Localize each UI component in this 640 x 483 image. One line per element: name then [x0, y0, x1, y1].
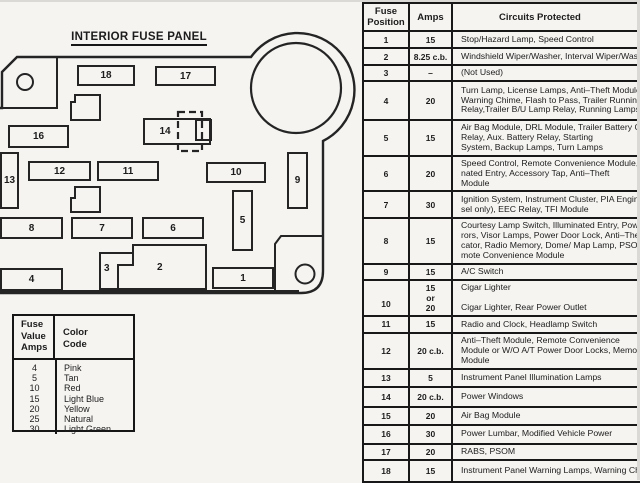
fuse-label: 1	[240, 273, 246, 284]
fuse-position-cell: 12	[363, 333, 409, 369]
fuse-label: 8	[29, 223, 35, 234]
mount-block-bottomright	[275, 236, 323, 291]
amps-cell: 8.25 c.b.	[409, 48, 452, 65]
fuse-row: 1815Instrument Panel Warning Lamps, Warn…	[363, 460, 640, 482]
circuits-cell: Radio and Clock, Headlamp Switch	[452, 316, 640, 333]
circuits-cell: (Not Used)	[452, 65, 640, 81]
header-circuits-protected: Circuits Protected	[452, 3, 640, 31]
legend-amps: 30	[14, 424, 55, 434]
fuse-row: 915A/C Switch	[363, 264, 640, 280]
legend-row: 25Natural	[14, 414, 133, 424]
amps-cell: 15	[409, 31, 452, 48]
fuse-position-cell: 10	[363, 280, 409, 316]
circuits-cell: RABS, PSOM	[452, 444, 640, 460]
fuse-row: 1520Air Bag Module	[363, 407, 640, 425]
fuse-position-cell: 16	[363, 425, 409, 444]
circuits-protected-table: Fuse Position Amps Circuits Protected 11…	[362, 2, 640, 483]
fuse-box-14: 14	[143, 118, 211, 145]
fuse-row: 1220 c.b.Anti–Theft Module, Remote Conve…	[363, 333, 640, 369]
fuse-label: 13	[4, 175, 15, 186]
legend-amps: 10	[14, 383, 55, 393]
circuits-cell: Cigar Lighter Cigar Lighter, Rear Power …	[452, 280, 640, 316]
fuse-row: 815Courtesy Lamp Switch, Illuminated Ent…	[363, 218, 640, 264]
fuse-label: 12	[54, 166, 65, 177]
fuse-position-cell: 14	[363, 387, 409, 407]
circuits-cell: Stop/Hazard Lamp, Speed Control	[452, 31, 640, 48]
fuse-row: 1720RABS, PSOM	[363, 444, 640, 460]
fuse-box-11: 11	[97, 161, 159, 181]
fuse-position-cell: 7	[363, 191, 409, 218]
legend-color: Yellow	[55, 404, 90, 414]
fuse-color-legend: Fuse Value Amps Color Code 4Pink 5Tan 10…	[12, 314, 135, 432]
amps-cell: 15	[409, 316, 452, 333]
fuse-position-cell: 1	[363, 31, 409, 48]
fuse-row: 730Ignition System, Instrument Cluster, …	[363, 191, 640, 218]
legend-color: Light Blue	[55, 394, 104, 404]
circuits-cell: A/C Switch	[452, 264, 640, 280]
amps-cell: 20	[409, 407, 452, 425]
fuse-label: 5	[240, 215, 246, 226]
table-header-row: Fuse Position Amps Circuits Protected	[363, 3, 640, 31]
amps-cell: 5	[409, 369, 452, 387]
fuse-row: 1630Power Lumbar, Modified Vehicle Power	[363, 425, 640, 444]
fuse-label: 18	[100, 70, 111, 81]
fuse-box-18: 18	[77, 65, 135, 86]
fuse-2-3-outline	[100, 245, 206, 289]
fuse-position-cell: 4	[363, 81, 409, 120]
amps-cell: 15	[409, 264, 452, 280]
fuse-row: 1015 or 20Cigar Lighter Cigar Lighter, R…	[363, 280, 640, 316]
keyed-connector-lower	[71, 187, 100, 212]
fuse-row: 420Turn Lamp, License Lamps, Anti–Theft …	[363, 81, 640, 120]
fuse-row: 1420 c.b.Power Windows	[363, 387, 640, 407]
legend-body: 4Pink 5Tan 10Red 15Light Blue 20Yellow 2…	[14, 360, 133, 434]
legend-row: 30Light Green	[14, 424, 133, 434]
fuse-label: 7	[99, 223, 105, 234]
amps-cell: 15 or 20	[409, 280, 452, 316]
fuse-position-cell: 6	[363, 156, 409, 192]
legend-color: Natural	[55, 414, 93, 424]
fuse-box-13: 13	[0, 152, 19, 209]
fuse-position-cell: 9	[363, 264, 409, 280]
amps-cell: 15	[409, 218, 452, 264]
legend-row: 15Light Blue	[14, 394, 133, 404]
circuits-cell: Power Lumbar, Modified Vehicle Power	[452, 425, 640, 444]
legend-row: 5Tan	[14, 373, 133, 383]
fuse-box-4: 4	[0, 268, 63, 291]
fuse-box-16: 16	[8, 125, 69, 148]
fuse-label: 14	[159, 126, 170, 137]
amps-cell: 30	[409, 191, 452, 218]
amps-cell: 20 c.b.	[409, 387, 452, 407]
mount-hole-topleft	[17, 74, 33, 90]
scan-edge-top	[0, 0, 640, 2]
amps-cell: 20	[409, 81, 452, 120]
circuits-cell: Air Bag Module	[452, 407, 640, 425]
fuse-box-8: 8	[0, 217, 63, 239]
fuse-position-cell: 18	[363, 460, 409, 482]
legend-amps: 15	[14, 394, 55, 404]
fuse-label: 16	[33, 131, 44, 142]
fuse-label: 4	[29, 274, 35, 285]
legend-row: 20Yellow	[14, 404, 133, 414]
circuits-cell: Turn Lamp, License Lamps, Anti–Theft Mod…	[452, 81, 640, 120]
panel-title: INTERIOR FUSE PANEL	[0, 27, 278, 45]
header-amps: Amps	[409, 3, 452, 31]
fuse-box-17: 17	[155, 66, 216, 86]
fuse-row: 3–(Not Used)	[363, 65, 640, 81]
circuits-cell: Anti–Theft Module, Remote Convenience Mo…	[452, 333, 640, 369]
legend-amps: 5	[14, 373, 55, 383]
legend-color: Red	[55, 383, 81, 393]
fuse-label: 17	[180, 71, 191, 82]
legend-amps: 25	[14, 414, 55, 424]
fuse-row: 515Air Bag Module, DRL Module, Trailer B…	[363, 120, 640, 156]
fuse-row: 28.25 c.b.Windshield Wiper/Washer, Inter…	[363, 48, 640, 65]
circuits-cell: Instrument Panel Illumination Lamps	[452, 369, 640, 387]
amps-cell: 20	[409, 156, 452, 192]
fuse-label-3: 3	[104, 263, 110, 274]
fuse-label: 6	[170, 223, 176, 234]
circuits-cell: Power Windows	[452, 387, 640, 407]
amps-cell: –	[409, 65, 452, 81]
header-fuse-position: Fuse Position	[363, 3, 409, 31]
amps-cell: 20 c.b.	[409, 333, 452, 369]
legend-color: Tan	[55, 373, 79, 383]
legend-header-amps: Fuse Value Amps	[14, 316, 55, 358]
amps-cell: 20	[409, 444, 452, 460]
fuse-label: 9	[295, 175, 301, 186]
circuits-cell: Windshield Wiper/Washer, Interval Wiper/…	[452, 48, 640, 65]
legend-header-color: Color Code	[55, 316, 88, 358]
fuse-box-7: 7	[71, 217, 133, 239]
fuse-label-2: 2	[157, 262, 163, 273]
fuse-position-cell: 5	[363, 120, 409, 156]
legend-row: 10Red	[14, 383, 133, 393]
legend-column-divider	[55, 360, 57, 434]
fuse-panel-diagram: INTERIOR FUSE PANEL 18 17 16 14 13 12 11…	[0, 0, 360, 480]
circuits-cell: Courtesy Lamp Switch, Illuminated Entry,…	[452, 218, 640, 264]
circuits-cell: Ignition System, Instrument Cluster, PIA…	[452, 191, 640, 218]
legend-header: Fuse Value Amps Color Code	[14, 316, 133, 360]
fuse-position-cell: 2	[363, 48, 409, 65]
fuse-label: 10	[230, 167, 241, 178]
fuse-position-cell: 8	[363, 218, 409, 264]
circuits-cell: Speed Control, Remote Convenience Module…	[452, 156, 640, 192]
legend-amps: 20	[14, 404, 55, 414]
legend-color: Pink	[55, 363, 82, 373]
round-knob	[251, 43, 341, 133]
fuse-box-5: 5	[232, 190, 253, 251]
amps-cell: 15	[409, 460, 452, 482]
fuse-box-12: 12	[28, 161, 91, 181]
fuse-box-6: 6	[142, 217, 204, 239]
fuse-position-cell: 11	[363, 316, 409, 333]
keyed-connector-upper	[71, 95, 100, 120]
legend-amps: 4	[14, 363, 55, 373]
fuse-position-cell: 13	[363, 369, 409, 387]
fuse-position-cell: 17	[363, 444, 409, 460]
circuits-cell: Air Bag Module, DRL Module, Trailer Batt…	[452, 120, 640, 156]
amps-cell: 30	[409, 425, 452, 444]
fuse-box-1: 1	[212, 267, 274, 289]
fuse-row: 115Stop/Hazard Lamp, Speed Control	[363, 31, 640, 48]
fuse-box-10: 10	[206, 162, 266, 183]
fuse-position-cell: 15	[363, 407, 409, 425]
fuse-row: 620Speed Control, Remote Convenience Mod…	[363, 156, 640, 192]
circuits-cell: Instrument Panel Warning Lamps, Warning …	[452, 460, 640, 482]
fuse-label: 11	[123, 166, 134, 177]
fuse-box-9: 9	[287, 152, 308, 209]
mount-hole-bottomright	[296, 265, 315, 284]
legend-row: 4Pink	[14, 363, 133, 373]
amps-cell: 15	[409, 120, 452, 156]
fuse-position-cell: 3	[363, 65, 409, 81]
legend-color: Light Green	[55, 424, 111, 434]
fuse-row: 135Instrument Panel Illumination Lamps	[363, 369, 640, 387]
scanned-fuse-diagram-page: { "diagram": { "title": "INTERIOR FUSE P…	[0, 0, 640, 480]
fuse-row: 1115Radio and Clock, Headlamp Switch	[363, 316, 640, 333]
